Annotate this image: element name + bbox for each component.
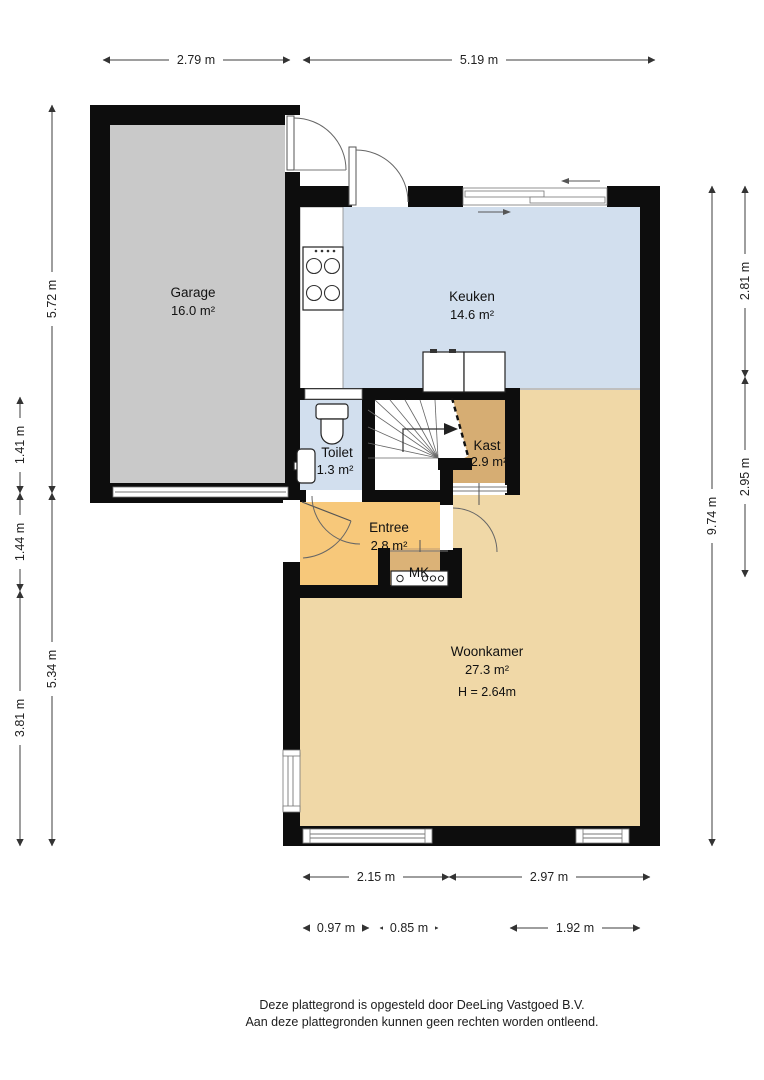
wall-keuken-top-mid xyxy=(408,186,463,207)
footer-line-1: Deze plattegrond is opgesteld door DeeLi… xyxy=(80,997,764,1014)
window-left xyxy=(283,750,300,812)
keuken-label: Keuken xyxy=(449,289,495,304)
mk-label: MK xyxy=(409,565,429,580)
dim-bottom-right: 2.97 m xyxy=(449,869,650,885)
svg-text:5.34 m: 5.34 m xyxy=(45,650,59,688)
svg-text:1.44 m: 1.44 m xyxy=(13,523,27,561)
floor-plan-drawing: Garage 16.0 m² Keuken 14.6 m² Toilet 1.3… xyxy=(0,0,764,1080)
kast-area: 2.9 m² xyxy=(471,454,509,469)
garage-side-door xyxy=(285,115,346,172)
toilet-top-opening xyxy=(305,389,362,399)
wall-kast-right xyxy=(505,388,520,495)
keuken-area: 14.6 m² xyxy=(450,307,495,322)
dim-right-mid: 2.95 m xyxy=(737,377,753,577)
woonkamer-area: 27.3 m² xyxy=(465,662,510,677)
svg-text:1.41 m: 1.41 m xyxy=(13,426,27,464)
dim-top-garage: 2.79 m xyxy=(103,52,290,68)
stairs-floor xyxy=(368,400,452,490)
woonkamer-floor-right xyxy=(520,390,640,826)
dim-left-lower-total: 5.34 m xyxy=(44,493,60,846)
toilet-label: Toilet xyxy=(321,445,353,460)
woonkamer-height: H = 2.64m xyxy=(458,685,516,699)
garage-door xyxy=(113,487,288,497)
toilet-area: 1.3 m² xyxy=(317,462,355,477)
wall-toilet-right xyxy=(362,398,375,492)
footer-line-2: Aan deze plattegronden kunnen geen recht… xyxy=(80,1014,764,1031)
footer-disclaimer: Deze plattegrond is opgesteld door DeeLi… xyxy=(80,997,764,1031)
svg-text:0.97 m: 0.97 m xyxy=(317,921,355,935)
svg-text:9.74 m: 9.74 m xyxy=(705,497,719,535)
dim-bottom-left: 2.15 m xyxy=(303,869,449,885)
svg-text:2.95 m: 2.95 m xyxy=(738,458,752,496)
svg-text:2.81 m: 2.81 m xyxy=(738,262,752,300)
stove-icon xyxy=(303,247,343,310)
dim-bottom-win2: 0.85 m xyxy=(380,920,438,936)
svg-text:3.81 m: 3.81 m xyxy=(13,699,27,737)
dim-top-house: 5.19 m xyxy=(303,52,655,68)
wall-right xyxy=(640,186,660,846)
entree-label: Entree xyxy=(369,520,409,535)
entree-area: 2.8 m² xyxy=(371,538,409,553)
svg-text:5.72 m: 5.72 m xyxy=(45,280,59,318)
floorplan-page: Garage 16.0 m² Keuken 14.6 m² Toilet 1.3… xyxy=(0,0,764,1080)
svg-text:2.97 m: 2.97 m xyxy=(530,870,568,884)
wall-entree-top-right xyxy=(360,490,440,502)
woonkamer-floor-mid xyxy=(453,495,520,826)
dim-bottom-win1: 0.97 m xyxy=(303,920,369,936)
kast-label: Kast xyxy=(473,438,500,453)
svg-text:1.92 m: 1.92 m xyxy=(556,921,594,935)
svg-text:0.85 m: 0.85 m xyxy=(390,921,428,935)
dim-right-total: 9.74 m xyxy=(704,186,720,846)
woonkamer-label: Woonkamer xyxy=(451,644,524,659)
wall-mk-bottom xyxy=(378,585,462,598)
wall-entree-bottom xyxy=(283,585,390,598)
wall-keuken-top-left xyxy=(300,186,352,207)
wall-garage-top xyxy=(90,105,300,125)
keuken-back-door xyxy=(349,147,408,207)
wall-kast-step xyxy=(438,458,472,470)
svg-text:2.15 m: 2.15 m xyxy=(357,870,395,884)
wall-garage-right-upper xyxy=(285,105,300,115)
garage-label: Garage xyxy=(170,285,215,300)
dim-bottom-win3: 1.92 m xyxy=(510,920,640,936)
svg-text:2.79 m: 2.79 m xyxy=(177,53,215,67)
dim-left-garage: 5.72 m xyxy=(44,105,60,493)
window-bottom-right xyxy=(576,829,629,843)
dim-left-woonkamer: 3.81 m xyxy=(12,591,28,846)
dim-right-keuken: 2.81 m xyxy=(737,186,753,377)
svg-text:5.19 m: 5.19 m xyxy=(460,53,498,67)
garage-area: 16.0 m² xyxy=(171,303,216,318)
sink-icon xyxy=(294,449,315,483)
dim-left-entree: 1.44 m xyxy=(12,493,28,591)
window-bottom-left xyxy=(303,829,432,843)
wall-garage-left xyxy=(90,105,110,503)
woonkamer-floor-left xyxy=(300,598,453,826)
dim-left-toilet: 1.41 m xyxy=(12,397,28,493)
wall-left-lower xyxy=(283,808,300,846)
wall-kast-bottom-left xyxy=(445,483,453,495)
kitchen-unit-icon xyxy=(423,349,505,392)
